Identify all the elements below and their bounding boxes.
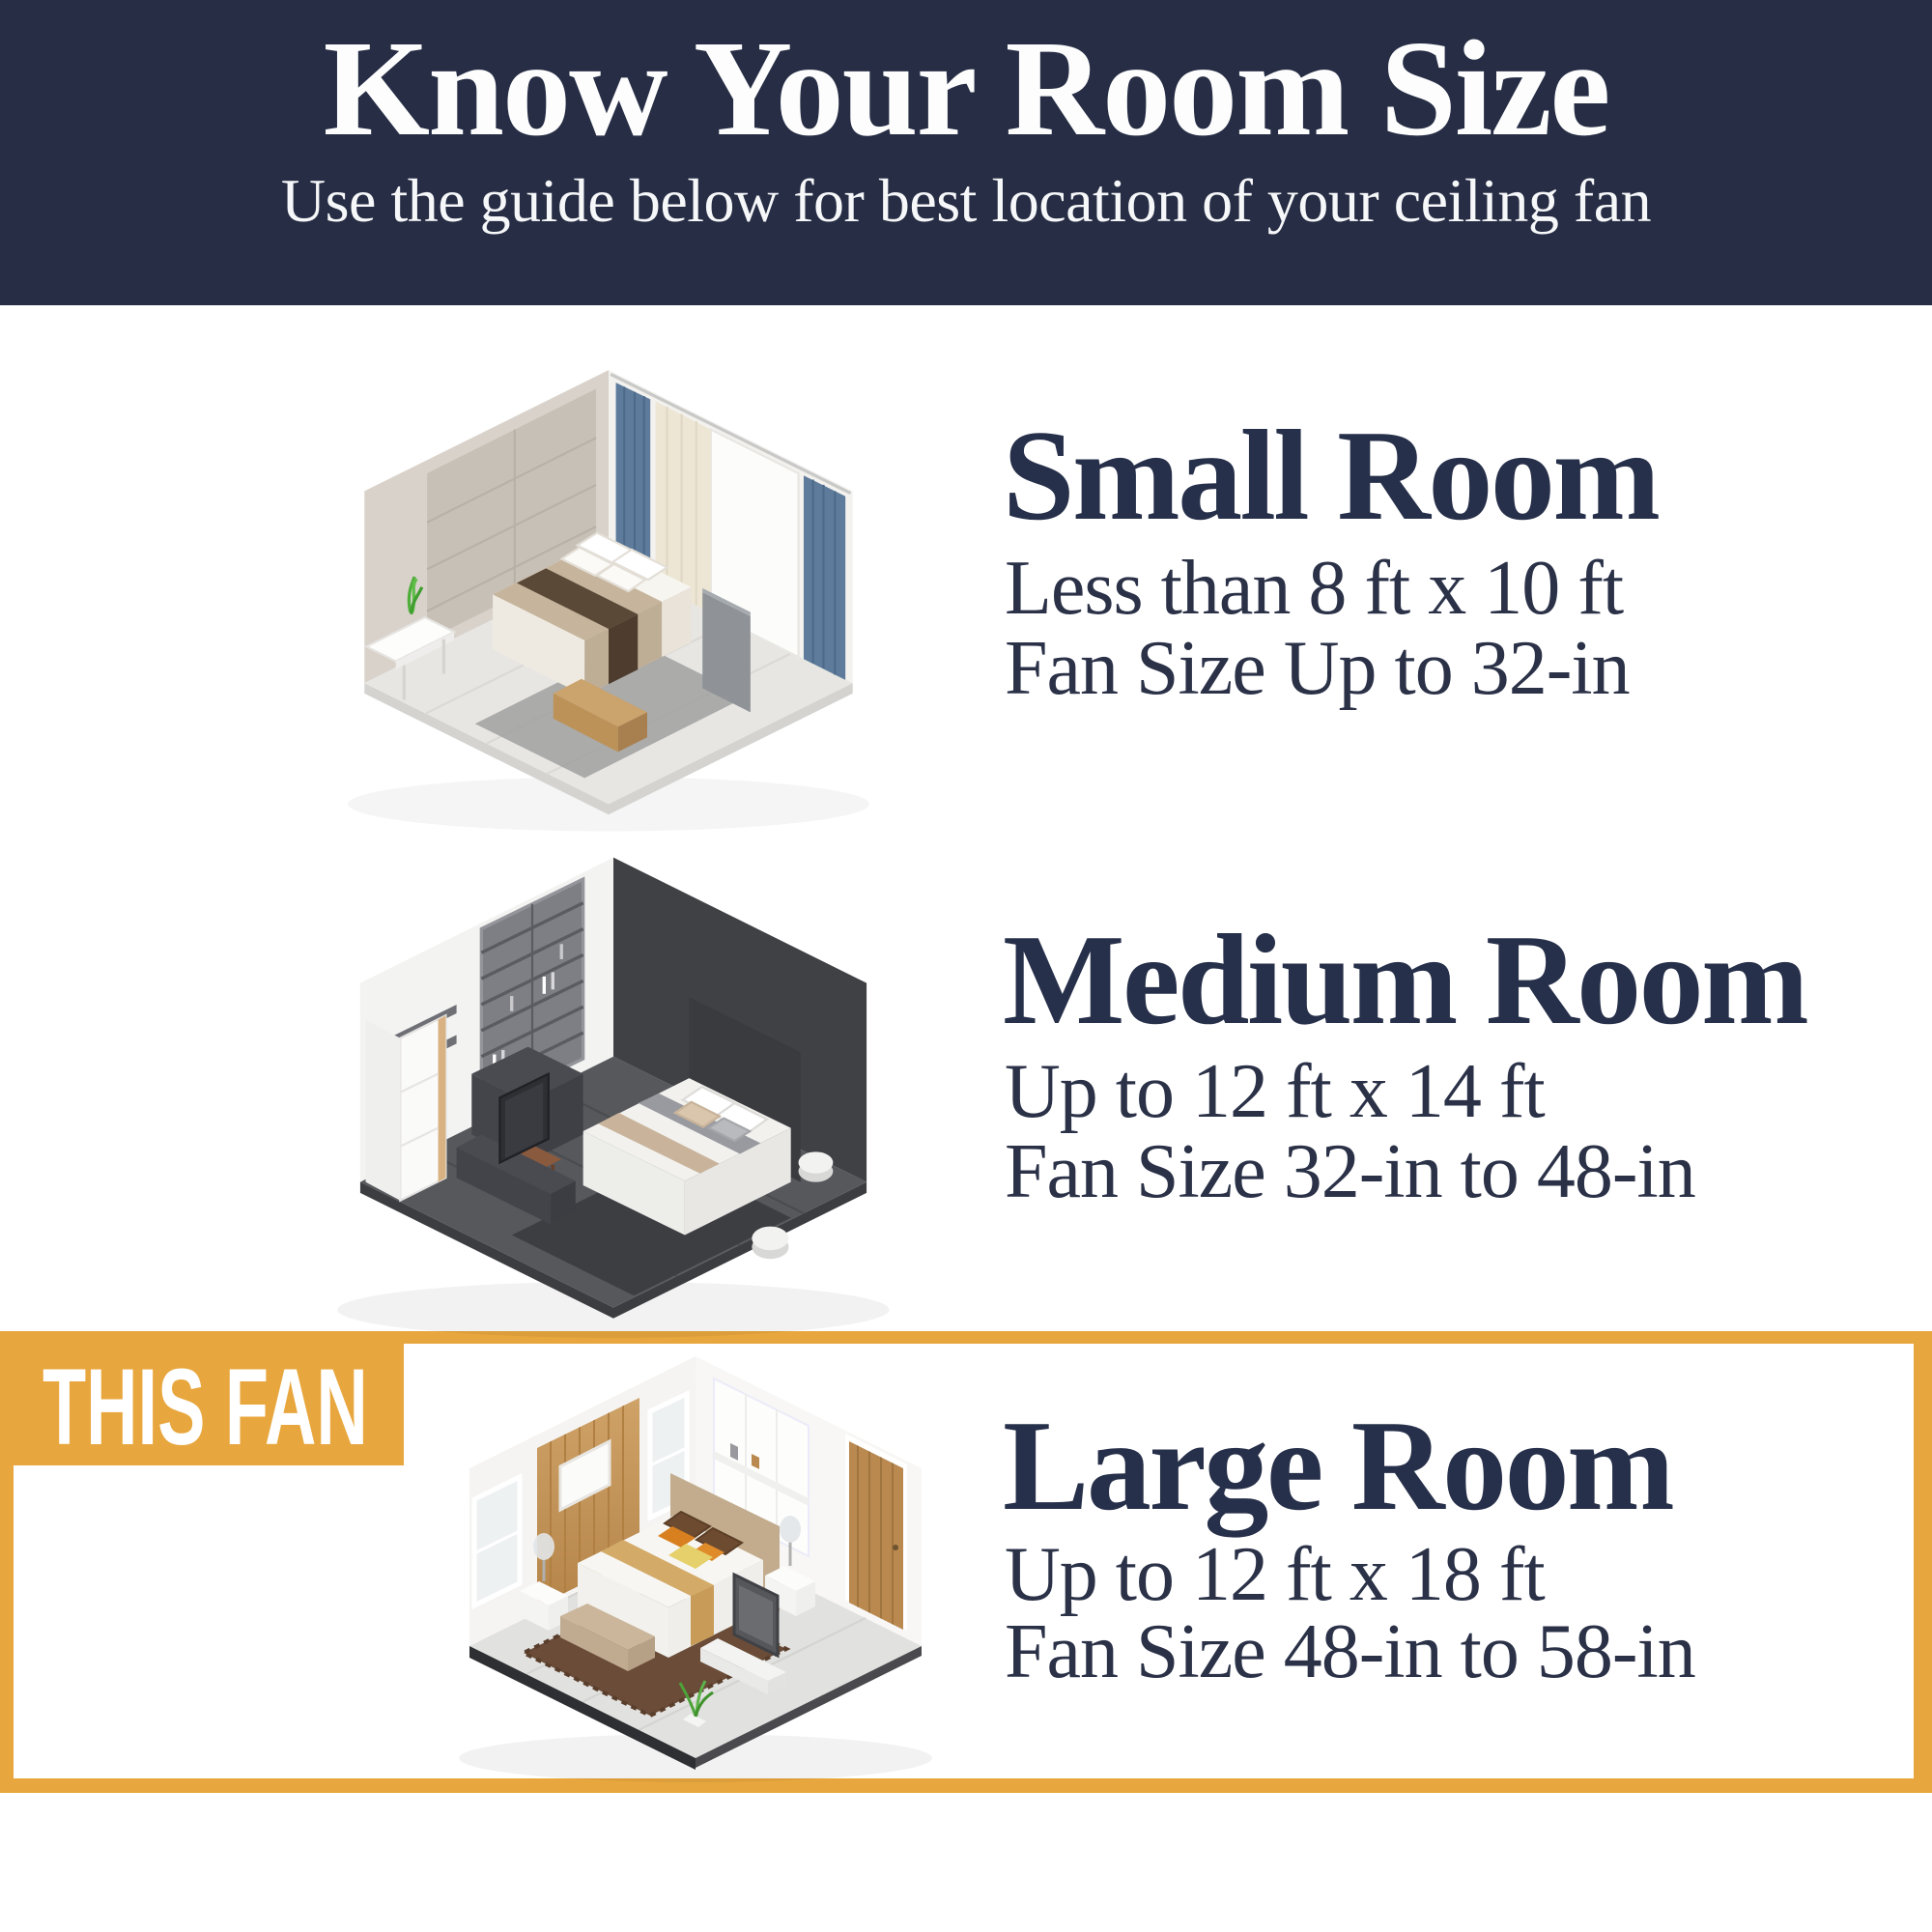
large-room-size-text: Up to 12 ft x 18 ft [1005,1536,1545,1613]
highlight-frame-right-border [1914,1331,1932,1793]
medium-room-heading: Medium Room [1003,915,1806,1044]
small-room-heading: Small Room [1003,411,1659,540]
small-room-size-text: Less than 8 ft x 10 ft [1005,550,1623,627]
medium-room-illustration medium-bedroom-isometric-icon [256,842,971,1383]
medium-room-size-text: Up to 12 ft x 14 ft [1005,1053,1545,1130]
infographic-page: Know Your Room Size Use the guide below … [0,0,1932,1932]
page-subtitle: Use the guide below for best location of… [0,170,1932,232]
page-title: Know Your Room Size [0,19,1932,156]
header-banner: Know Your Room Size Use the guide below … [0,0,1932,305]
small-room-fan-size-text: Fan Size Up to 32-in [1005,630,1630,707]
highlight-frame-left-border [0,1465,14,1793]
medium-room-fan-size-text: Fan Size 32-in to 48-in [1005,1133,1695,1210]
small-room-illustration small-bedroom-isometric-icon [270,355,947,877]
large-room-heading: Large Room [1003,1401,1672,1530]
large-room-illustration large-bedroom-isometric-icon [406,1333,985,1835]
large-room-fan-size-text: Fan Size 48-in to 58-in [1005,1613,1695,1690]
